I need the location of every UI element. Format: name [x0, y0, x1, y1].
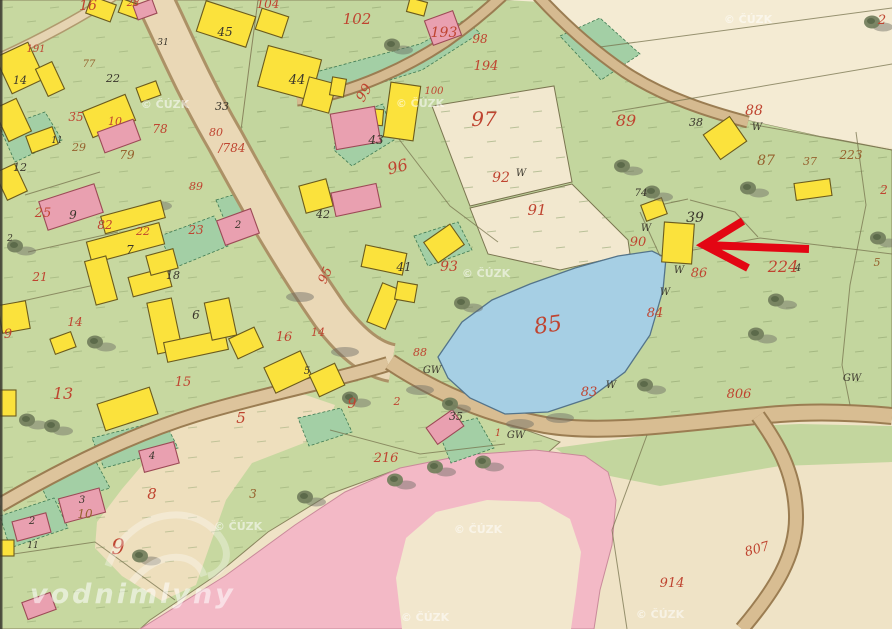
parcel-number: 80 — [209, 126, 223, 139]
wetland-mark: W — [660, 287, 671, 298]
tree-core — [640, 381, 648, 387]
parcel-number: 23 — [187, 223, 204, 237]
tree-core — [135, 552, 143, 558]
house-number: 3 — [79, 495, 85, 506]
house-number: 22 — [105, 72, 120, 85]
road-shadow-smudge — [546, 413, 574, 423]
parcel-number: 914 — [660, 576, 685, 591]
cadastral-map[interactable]: 1610410219398194991009792919689882290868… — [0, 0, 892, 629]
house-number: 5 — [304, 366, 310, 377]
tree-core — [647, 188, 655, 194]
parcel-number: 90 — [630, 235, 647, 250]
house-number: 6 — [192, 308, 200, 322]
parcel-number: 223 — [839, 148, 863, 162]
house-number: 2 — [234, 220, 241, 231]
parcel-number: 98 — [472, 32, 488, 46]
tree-core — [22, 416, 30, 422]
parcel-number: 25 — [34, 206, 52, 221]
parcel-number: 88 — [413, 346, 427, 359]
copyright-watermark: © ČÚZK — [454, 523, 503, 536]
house-number: 14 — [13, 74, 27, 87]
parcel-number: 84 — [647, 306, 664, 321]
house-number: 11 — [51, 136, 62, 146]
tree-core — [47, 422, 55, 428]
house-number: 2 — [28, 516, 35, 527]
parcel-number: 82 — [97, 218, 112, 232]
tree-core — [478, 458, 486, 464]
house-number: 43 — [367, 133, 384, 147]
house-number: 31 — [157, 38, 168, 48]
parcel-number: 35 — [68, 110, 83, 124]
copyright-watermark: © ČÚZK — [462, 267, 511, 280]
parcel-number: 224 — [767, 257, 799, 276]
parcel-number: 87 — [757, 153, 775, 169]
house-number: 44 — [288, 73, 306, 88]
parcel-number: 97 — [471, 107, 497, 131]
parcel-number: 2 — [877, 13, 886, 28]
parcel-number: /784 — [218, 141, 246, 155]
parcel-number: 10 — [77, 507, 93, 521]
tree-core — [300, 493, 308, 499]
parcel-number: 22 — [135, 225, 150, 238]
scan-edge — [0, 0, 3, 629]
tree-core — [617, 162, 625, 168]
parcel-number: 92 — [492, 170, 510, 186]
copyright-watermark: © ČÚZK — [396, 97, 445, 110]
house-number: 42 — [315, 208, 330, 221]
parcel-number: 193 — [431, 25, 458, 41]
parcel-number: 77 — [83, 59, 96, 70]
parcel-number: 14 — [67, 315, 82, 329]
tree-core — [771, 296, 779, 302]
wetland-mark: W — [606, 380, 617, 391]
house-number: 4 — [794, 263, 801, 274]
parcel-number: 86 — [691, 266, 708, 281]
wooden-building — [395, 281, 418, 302]
house-number: 74 — [635, 188, 648, 199]
house-number: 35 — [449, 410, 463, 423]
wetland-mark: GW — [423, 365, 442, 376]
copyright-watermark: © ČÚZK — [214, 520, 263, 533]
parcel-number: 78 — [152, 122, 168, 136]
wetland-mark: W — [641, 223, 652, 234]
parcel-number: 5 — [236, 409, 246, 427]
wetland-mark: GW — [507, 430, 526, 441]
road-shadow-smudge — [331, 347, 359, 357]
tree-core — [867, 18, 875, 24]
site-watermark: vodnimlyny — [30, 579, 236, 610]
parcel-number: 102 — [343, 10, 372, 28]
parcel-number: 191 — [26, 44, 45, 55]
copyright-watermark: © ČÚZK — [401, 611, 450, 624]
tree-core — [387, 41, 395, 47]
parcel-number: 3 — [249, 487, 257, 501]
arrow-target-building — [662, 222, 695, 264]
house-number: 33 — [215, 100, 229, 113]
house-number: 7 — [126, 243, 134, 257]
parcel-number: 85 — [532, 311, 563, 340]
parcel-number: 21 — [31, 270, 47, 284]
copyright-watermark: © ČÚZK — [141, 98, 190, 111]
house-number: 12 — [13, 161, 27, 174]
tree-core — [390, 476, 398, 482]
tree-core — [751, 330, 759, 336]
parcel-number: 194 — [474, 59, 499, 74]
tree-core — [445, 400, 453, 406]
parcel-number: 100 — [424, 86, 444, 97]
house-number: 4 — [148, 451, 155, 462]
parcel-number: 2 — [393, 395, 401, 408]
parcel-number: 806 — [727, 387, 752, 402]
wooden-building — [330, 77, 347, 97]
copyright-watermark: © ČÚZK — [724, 13, 773, 26]
wetland-mark: GW — [843, 373, 862, 384]
parcel-number: 14 — [311, 326, 325, 339]
parcel-number: 29 — [71, 141, 86, 154]
house-number: 41 — [395, 260, 411, 274]
tree-core — [873, 234, 881, 240]
house-number: 39 — [686, 210, 704, 226]
parcel-number: 15 — [175, 375, 192, 390]
parcel-number: 8 — [147, 485, 157, 503]
copyright-watermark: © ČÚZK — [636, 608, 685, 621]
road-shadow-smudge — [406, 385, 434, 395]
parcel-number: 89 — [189, 180, 203, 193]
parcel-number: 28 — [126, 0, 140, 9]
house-number: 38 — [689, 116, 703, 129]
parcel-number: 9 — [348, 396, 357, 412]
wetland-mark: W — [516, 168, 527, 179]
parcel-number: 104 — [257, 0, 280, 11]
tree-core — [90, 338, 98, 344]
parcel-number: 16 — [276, 330, 293, 345]
house-number: 2 — [6, 234, 13, 244]
house-number: 18 — [166, 269, 180, 282]
parcel-number: 37 — [803, 155, 817, 168]
house-number: 45 — [216, 25, 232, 39]
parcel-number: 79 — [119, 148, 135, 162]
house-number: 9 — [69, 208, 77, 222]
parcel-number: 13 — [53, 384, 73, 403]
wetland-mark: W — [674, 265, 685, 276]
parcel-number: 2 — [879, 183, 888, 197]
wetland-mark: W — [752, 122, 763, 133]
road-shadow-smudge — [286, 292, 314, 302]
tree-core — [457, 299, 465, 305]
house-number: 11 — [27, 541, 38, 551]
parcel-number: 93 — [440, 259, 458, 275]
road-shadow-smudge — [506, 419, 534, 429]
parcel-number: 83 — [581, 385, 598, 400]
parcel-number: 88 — [745, 103, 763, 119]
parcel-number: 1 — [495, 428, 501, 439]
parcel-number: 91 — [527, 201, 546, 219]
parcel-number: 216 — [373, 451, 399, 466]
parcel-number: 9 — [4, 327, 12, 342]
parcel-number: 5 — [874, 256, 881, 269]
parcel-number: 89 — [616, 111, 636, 130]
tree-core — [430, 463, 438, 469]
tree-core — [743, 184, 751, 190]
parcel-number: 10 — [108, 115, 122, 128]
parcel-number: 16 — [79, 0, 97, 14]
